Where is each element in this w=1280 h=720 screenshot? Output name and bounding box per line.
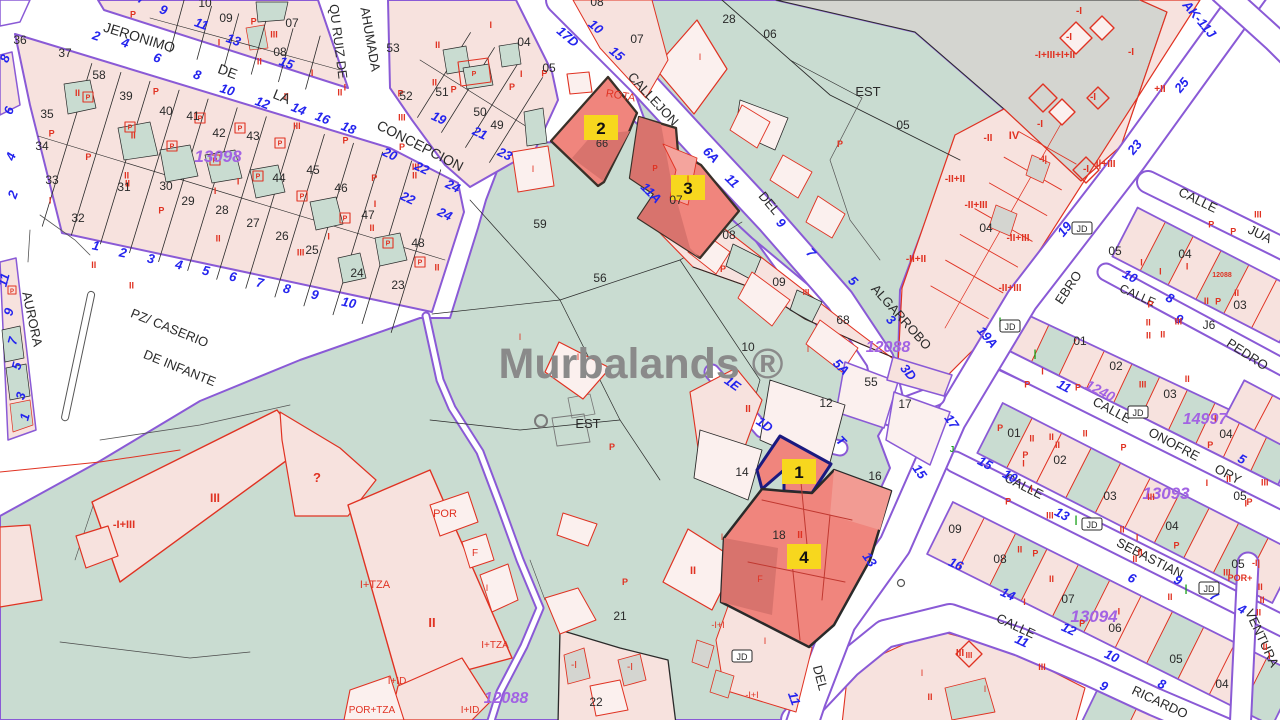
svg-text:43: 43: [246, 129, 260, 143]
svg-text:-II+II: -II+II: [945, 174, 966, 185]
svg-text:08: 08: [590, 0, 604, 9]
svg-text:II: II: [257, 57, 262, 67]
svg-text:28: 28: [215, 203, 229, 217]
svg-text:II: II: [1226, 474, 1231, 484]
svg-text:P: P: [1024, 379, 1030, 389]
svg-text:III: III: [1038, 662, 1046, 672]
svg-text:13094: 13094: [1070, 607, 1118, 626]
svg-text:P: P: [386, 241, 391, 248]
svg-text:02: 02: [1109, 359, 1123, 373]
svg-text:EST: EST: [575, 416, 600, 431]
svg-text:J: J: [950, 445, 954, 454]
svg-text:IV: IV: [1009, 130, 1020, 142]
svg-text:P: P: [997, 423, 1003, 433]
svg-text:II: II: [1029, 433, 1034, 443]
svg-text:III: III: [297, 248, 305, 258]
svg-text:30: 30: [159, 179, 173, 193]
svg-text:I: I: [687, 174, 690, 184]
svg-text:-I+I: -I+I: [711, 620, 724, 630]
svg-text:F: F: [472, 548, 478, 559]
svg-text:36: 36: [13, 33, 27, 47]
svg-text:42: 42: [212, 126, 226, 140]
svg-text:P: P: [1032, 549, 1038, 559]
svg-text:I: I: [1214, 414, 1217, 424]
svg-text:05: 05: [542, 61, 556, 75]
svg-text:I: I: [1030, 484, 1033, 494]
svg-text:III: III: [956, 648, 965, 659]
svg-text:P: P: [1230, 226, 1236, 236]
svg-text:12088: 12088: [866, 339, 911, 356]
svg-text:P: P: [472, 71, 477, 78]
svg-text:12: 12: [819, 396, 833, 410]
svg-text:II: II: [1263, 642, 1268, 652]
svg-text:47: 47: [361, 208, 375, 222]
svg-text:-I: -I: [627, 662, 633, 673]
svg-text:07: 07: [630, 32, 644, 46]
svg-text:4: 4: [799, 548, 809, 567]
svg-text:1: 1: [794, 463, 803, 482]
svg-text:I: I: [1206, 478, 1209, 488]
svg-text:EST: EST: [855, 84, 880, 99]
svg-text:29: 29: [181, 194, 195, 208]
svg-text:-I|: -I|: [1039, 154, 1047, 164]
svg-text:51: 51: [435, 85, 449, 99]
svg-text:I: I: [311, 68, 314, 78]
svg-text:27: 27: [246, 216, 260, 230]
svg-text:P: P: [251, 16, 257, 26]
svg-text:41: 41: [186, 109, 200, 123]
svg-text:I: I: [807, 344, 810, 354]
svg-text:I: I: [1140, 258, 1143, 268]
svg-text:POR: POR: [433, 508, 457, 520]
svg-text:P: P: [170, 144, 175, 151]
svg-text:18: 18: [772, 528, 786, 542]
svg-text:I: I: [49, 196, 52, 206]
svg-text:I: I: [1268, 651, 1271, 661]
svg-text:17: 17: [898, 397, 912, 411]
svg-text:P: P: [1207, 440, 1213, 450]
svg-text:II: II: [1146, 331, 1151, 341]
svg-text:08: 08: [273, 45, 287, 59]
svg-text:I: I: [921, 668, 924, 678]
svg-text:P: P: [1120, 443, 1126, 453]
svg-text:48: 48: [411, 236, 425, 250]
svg-text:P: P: [720, 264, 726, 274]
svg-text:|: |: [1034, 349, 1037, 360]
svg-text:JD: JD: [1087, 520, 1099, 530]
svg-text:P: P: [622, 577, 628, 587]
svg-text:01: 01: [1073, 334, 1087, 348]
svg-text:26: 26: [275, 229, 289, 243]
svg-text:09: 09: [772, 275, 786, 289]
svg-text:POR+TZA: POR+TZA: [349, 705, 396, 716]
svg-text:II: II: [690, 565, 696, 577]
svg-text:-II+III: -II+III: [964, 200, 987, 211]
svg-text:P: P: [343, 216, 348, 223]
svg-text:I: I: [237, 176, 240, 186]
svg-text:-I: -I: [1128, 47, 1134, 58]
svg-text:28: 28: [722, 12, 736, 26]
svg-text:Murbalands ®: Murbalands ®: [499, 340, 784, 388]
svg-text:25: 25: [305, 243, 319, 257]
svg-text:II: II: [435, 40, 440, 50]
svg-text:14: 14: [735, 465, 749, 479]
svg-text:-I: -I: [1090, 92, 1096, 103]
svg-text:P: P: [451, 84, 457, 94]
svg-text:II: II: [1234, 288, 1239, 298]
svg-text:-I+III: -I+III: [113, 519, 135, 531]
svg-text:-II+II: -II+II: [906, 254, 927, 265]
svg-text:P: P: [1215, 296, 1221, 306]
svg-text:04: 04: [517, 35, 531, 49]
svg-text:05: 05: [896, 118, 910, 132]
svg-text:P: P: [1147, 300, 1153, 310]
svg-text:03: 03: [1233, 298, 1247, 312]
svg-text:P: P: [1174, 541, 1180, 551]
svg-text:12088: 12088: [1212, 272, 1232, 279]
svg-text:I: I: [1118, 606, 1121, 616]
svg-text:-I: -I: [1076, 6, 1082, 17]
svg-text:-I|+III: -I|+III: [1092, 159, 1115, 170]
svg-text:08: 08: [722, 228, 736, 242]
svg-text:P: P: [300, 194, 305, 201]
svg-text:I: I: [699, 52, 702, 62]
svg-text:04: 04: [1178, 247, 1192, 261]
svg-text:09: 09: [219, 11, 233, 25]
svg-text:P: P: [609, 442, 615, 452]
svg-text:II: II: [1055, 440, 1060, 450]
svg-text:32: 32: [71, 211, 85, 225]
svg-text:-I: -I: [1037, 119, 1043, 130]
svg-text:II: II: [797, 530, 803, 541]
svg-text:P: P: [1075, 382, 1081, 392]
svg-text:II: II: [1160, 329, 1165, 339]
svg-text:P: P: [130, 10, 136, 20]
svg-text:?: ?: [313, 470, 321, 485]
svg-text:I: I: [1186, 262, 1189, 272]
svg-text:-I|: -I|: [1252, 558, 1260, 568]
svg-text:56: 56: [593, 271, 607, 285]
svg-text:P: P: [238, 126, 243, 133]
svg-text:I+ID: I+ID: [388, 676, 407, 687]
svg-text:JD: JD: [1204, 584, 1216, 594]
svg-text:09: 09: [948, 522, 962, 536]
svg-text:12088: 12088: [484, 690, 529, 707]
svg-text:02: 02: [1053, 453, 1067, 467]
svg-text:F: F: [757, 574, 763, 584]
svg-text:53: 53: [386, 41, 400, 55]
svg-text:II: II: [1146, 318, 1151, 328]
svg-text:46: 46: [334, 181, 348, 195]
svg-text:J6: J6: [1203, 318, 1216, 332]
svg-text:I: I: [218, 37, 221, 47]
svg-text:II: II: [1185, 374, 1190, 384]
svg-text:P: P: [1208, 219, 1214, 229]
svg-text:II: II: [91, 260, 96, 270]
svg-text:III: III: [1175, 316, 1183, 326]
svg-text:50: 50: [473, 105, 487, 119]
svg-text:07: 07: [1061, 592, 1075, 606]
svg-text:06: 06: [763, 27, 777, 41]
svg-text:|: |: [1075, 515, 1078, 526]
svg-text:II: II: [1017, 545, 1022, 555]
svg-text:I+TZA: I+TZA: [481, 640, 509, 651]
svg-text:14997: 14997: [1183, 411, 1229, 428]
svg-text:P: P: [652, 164, 658, 173]
svg-text:07: 07: [285, 16, 299, 30]
svg-text:-I: -I: [571, 660, 577, 671]
svg-text:II: II: [1256, 608, 1261, 618]
svg-text:21: 21: [613, 609, 627, 623]
svg-text:P: P: [153, 87, 159, 97]
svg-text:I: I: [344, 82, 347, 92]
svg-text:I: I: [489, 20, 492, 30]
svg-text:23: 23: [391, 278, 405, 292]
svg-text:2: 2: [596, 119, 605, 138]
svg-text:JD: JD: [1077, 224, 1089, 234]
svg-text:04: 04: [1215, 677, 1229, 691]
svg-text:52: 52: [399, 89, 413, 103]
svg-text:P: P: [371, 173, 377, 183]
svg-text:03: 03: [1103, 489, 1117, 503]
svg-text:05: 05: [1108, 244, 1122, 258]
svg-text:33: 33: [45, 173, 59, 187]
svg-text:I: I: [764, 636, 767, 646]
svg-text:P: P: [343, 136, 349, 146]
svg-text:POR+: POR+: [1228, 573, 1253, 583]
svg-text:JD: JD: [1133, 408, 1145, 418]
svg-text:III: III: [398, 112, 406, 122]
svg-text:-I: -I: [1066, 32, 1072, 43]
svg-text:II: II: [1083, 429, 1088, 439]
svg-text:P: P: [1247, 497, 1253, 507]
svg-text:I: I: [214, 186, 217, 196]
svg-text:P: P: [1005, 497, 1011, 507]
svg-text:II: II: [337, 87, 342, 97]
svg-text:34: 34: [35, 139, 49, 153]
svg-text:II: II: [927, 692, 932, 702]
svg-text:49: 49: [490, 118, 504, 132]
svg-text:III: III: [1046, 510, 1054, 520]
svg-text:-II: -II: [984, 133, 993, 144]
svg-text:I: I: [1159, 266, 1162, 276]
svg-text:+II: +II: [1154, 84, 1166, 95]
svg-text:08: 08: [993, 552, 1007, 566]
svg-text:II: II: [131, 130, 136, 140]
svg-text:P: P: [49, 129, 55, 139]
svg-text:-II+III: -II+III: [998, 283, 1021, 294]
svg-text:24: 24: [350, 266, 364, 280]
svg-text:10: 10: [198, 0, 212, 10]
svg-text:III: III: [293, 121, 301, 131]
svg-text:II: II: [370, 223, 375, 233]
svg-text:I: I: [1022, 458, 1025, 468]
svg-text:P: P: [418, 260, 423, 267]
svg-text:II: II: [1138, 548, 1143, 558]
svg-text:13098: 13098: [194, 147, 242, 166]
svg-text:P: P: [399, 142, 405, 152]
svg-text:JD: JD: [1005, 322, 1017, 332]
svg-text:II: II: [1120, 524, 1125, 534]
svg-text:JD: JD: [737, 652, 749, 662]
svg-text:II: II: [1258, 582, 1263, 592]
svg-text:39: 39: [119, 89, 133, 103]
svg-text:II: II: [129, 281, 134, 291]
svg-text:I: I: [1041, 366, 1044, 376]
svg-text:I: I: [1136, 532, 1139, 542]
svg-text:II: II: [216, 234, 221, 244]
svg-text:III: III: [966, 651, 973, 660]
svg-text:II: II: [1260, 595, 1265, 605]
svg-text:III: III: [270, 30, 278, 40]
svg-text:I: I: [1023, 597, 1026, 607]
svg-text:I: I: [532, 164, 535, 174]
svg-text:-II+III: -II+III: [1006, 233, 1029, 244]
svg-text:55: 55: [864, 375, 878, 389]
svg-text:I: I: [984, 684, 987, 694]
svg-text:II: II: [1132, 554, 1137, 564]
svg-text:III: III: [803, 288, 810, 297]
svg-text:I: I: [1245, 498, 1248, 508]
svg-text:II: II: [1168, 592, 1173, 602]
svg-text:05: 05: [1231, 557, 1245, 571]
svg-text:II: II: [435, 263, 440, 273]
svg-text:16: 16: [868, 469, 882, 483]
svg-text:-I: -I: [1083, 164, 1089, 175]
svg-text:04: 04: [979, 221, 993, 235]
svg-text:I: I: [327, 231, 330, 241]
svg-text:P: P: [837, 139, 843, 149]
svg-text:I: I: [520, 69, 523, 79]
svg-text:-I+III+I+II: -I+III+I+II: [1035, 50, 1076, 61]
svg-text:68: 68: [836, 313, 850, 327]
svg-text:III: III: [1261, 477, 1269, 487]
svg-text:05: 05: [1169, 652, 1183, 666]
svg-text:P: P: [85, 152, 91, 162]
svg-text:II: II: [428, 615, 435, 630]
svg-text:45: 45: [306, 163, 320, 177]
svg-text:07: 07: [669, 193, 683, 207]
svg-text:04: 04: [1219, 427, 1233, 441]
svg-text:II: II: [1049, 574, 1054, 584]
svg-text:P: P: [10, 289, 14, 295]
svg-text:III: III: [1147, 492, 1155, 502]
svg-text:22: 22: [589, 695, 603, 709]
svg-text:III: III: [210, 491, 220, 505]
svg-text:P: P: [278, 141, 283, 148]
svg-text:|: |: [1185, 584, 1188, 595]
svg-text:I: I: [486, 583, 489, 593]
svg-text:59: 59: [533, 217, 547, 231]
svg-text:II: II: [1049, 432, 1054, 442]
svg-text:II: II: [1204, 296, 1209, 306]
svg-text:III: III: [1254, 210, 1262, 220]
svg-text:37: 37: [58, 46, 72, 60]
svg-text:P: P: [86, 95, 91, 102]
svg-text:35: 35: [40, 107, 54, 121]
svg-text:P: P: [158, 205, 164, 215]
svg-text:II: II: [75, 88, 80, 98]
svg-text:31: 31: [117, 180, 131, 194]
svg-text:I+ID: I+ID: [461, 705, 480, 716]
svg-text:I+TZA: I+TZA: [360, 579, 391, 591]
svg-text:40: 40: [159, 104, 173, 118]
svg-text:04: 04: [1165, 519, 1179, 533]
svg-text:01: 01: [1007, 426, 1021, 440]
svg-text:44: 44: [272, 171, 286, 185]
svg-text:03: 03: [1163, 387, 1177, 401]
svg-text:-I+I: -I+I: [745, 690, 758, 700]
svg-text:P: P: [509, 82, 515, 92]
svg-text:58: 58: [92, 68, 106, 82]
svg-text:II: II: [745, 404, 751, 415]
svg-text:P: P: [1079, 619, 1085, 629]
svg-text:III: III: [1139, 379, 1147, 389]
svg-text:P: P: [256, 174, 261, 181]
